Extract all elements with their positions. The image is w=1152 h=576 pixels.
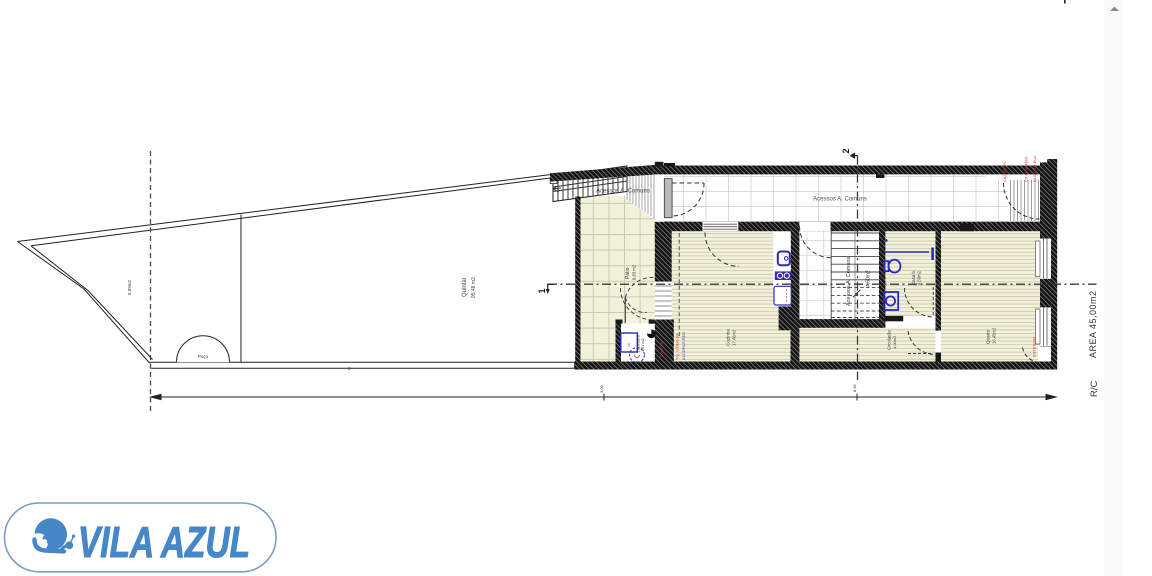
svg-text:4,60m2: 4,60m2 xyxy=(866,270,872,287)
svg-text:4,50m2: 4,50m2 xyxy=(917,270,922,285)
svg-text:CAIXA G.N.: CAIXA G.N. xyxy=(1002,161,1007,182)
svg-text:16,45m2: 16,45m2 xyxy=(992,327,997,344)
svg-text:1: 1 xyxy=(537,288,547,293)
svg-text:Cozinha: Cozinha xyxy=(726,329,731,346)
svg-text:ch: ch xyxy=(626,343,631,347)
svg-text:ALCOFAS RED: ALCOFAS RED xyxy=(681,332,686,360)
svg-text:8,45: 8,45 xyxy=(852,383,857,392)
svg-text:T.Q. 0.60x0.60: T.Q. 0.60x0.60 xyxy=(675,333,680,360)
svg-text:17,46m2: 17,46m2 xyxy=(732,329,737,346)
svg-text:Lavandaria: Lavandaria xyxy=(637,335,641,352)
svg-text:8,89m2: 8,89m2 xyxy=(127,279,132,295)
svg-text:Acessos A. Comuns: Acessos A. Comuns xyxy=(596,189,650,195)
svg-text:8,83 m2: 8,83 m2 xyxy=(632,264,637,280)
svg-text:Poço: Poço xyxy=(198,354,209,359)
svg-text:Acessos A. Comuns: Acessos A. Comuns xyxy=(813,197,867,203)
svg-text:4,00m2: 4,00m2 xyxy=(892,335,897,349)
svg-text:Pátio: Pátio xyxy=(625,267,631,279)
svg-text:T.QUEDA: T.QUEDA xyxy=(659,340,664,358)
svg-text:VILA AZUL: VILA AZUL xyxy=(78,518,250,567)
svg-text:Quarto: Quarto xyxy=(986,330,991,344)
svg-text:Acessos A. Comuns: Acessos A. Comuns xyxy=(846,257,852,306)
svg-text:QUADRO ELU: QUADRO ELU xyxy=(1032,155,1037,182)
svg-text:1,61 m2: 1,61 m2 xyxy=(641,338,645,352)
svg-text:R/C: R/C xyxy=(1089,381,1100,398)
svg-text:3,06: 3,06 xyxy=(599,384,604,393)
svg-text:2: 2 xyxy=(841,148,851,153)
svg-text:95,48 m2: 95,48 m2 xyxy=(471,277,477,298)
svg-text:AREA 45,00m2: AREA 45,00m2 xyxy=(1088,290,1098,358)
svg-text:Circulação: Circulação xyxy=(887,330,892,350)
svg-text:CX CORREIO: CX CORREIO xyxy=(1024,157,1029,182)
svg-text:Quintal: Quintal xyxy=(462,278,468,297)
svg-text:Casa b.: Casa b. xyxy=(911,270,916,285)
svg-text:ESTENDAL: ESTENDAL xyxy=(1032,335,1037,357)
